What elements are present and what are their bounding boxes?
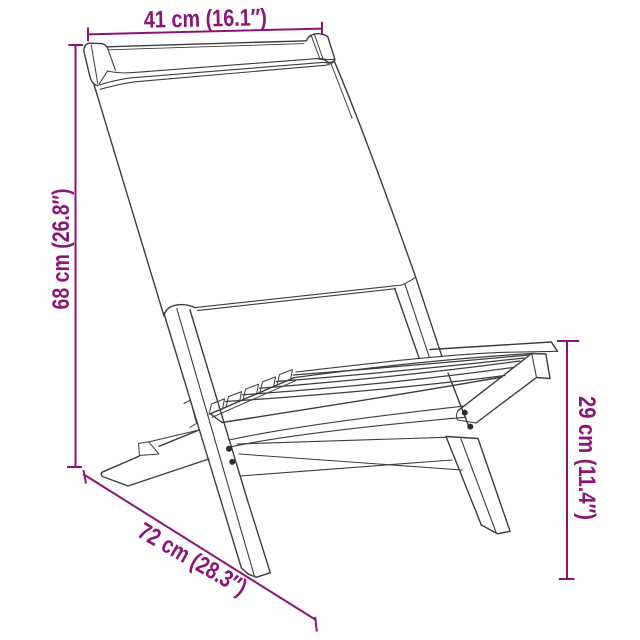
svg-text:29 cm (11.4″): 29 cm (11.4″) <box>573 396 600 520</box>
svg-text:68 cm (26.8″): 68 cm (26.8″) <box>48 189 75 310</box>
svg-text:41 cm (16.1″): 41 cm (16.1″) <box>144 4 268 34</box>
